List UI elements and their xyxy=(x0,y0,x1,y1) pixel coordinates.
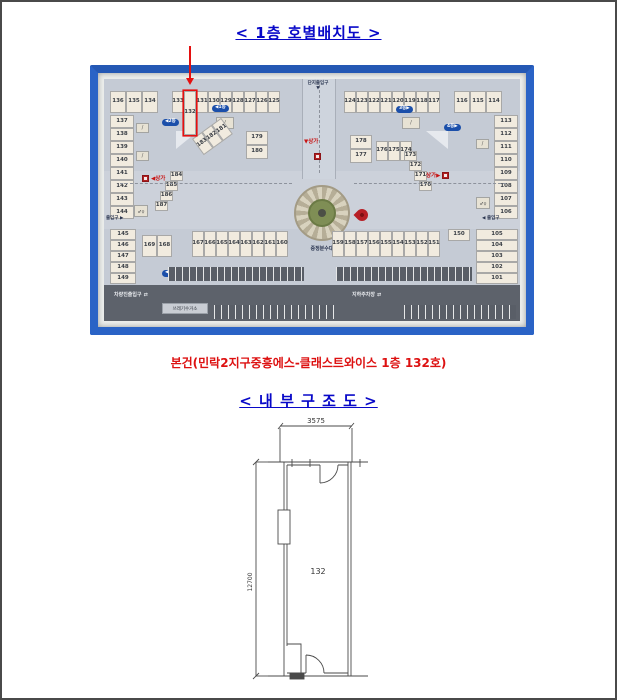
structure-diagram: 3575 12700 132 xyxy=(230,410,400,700)
parking-strip xyxy=(168,267,304,281)
unit-cell: 164 xyxy=(228,231,240,257)
unit-cell: 110 xyxy=(494,154,518,167)
unit-column: 178177 xyxy=(350,135,372,163)
floor-layout-photo: 단지출입구 ▼ 136135134 1331321311301291281271… xyxy=(90,65,534,335)
document-page: < 1층 호별배치도 > 단지출입구 ▼ 136135134 133132131… xyxy=(0,0,617,700)
restroom-icon: ♂♀ xyxy=(134,205,148,217)
plaza-dash-line xyxy=(120,183,292,184)
unit-cell: 154 xyxy=(392,231,404,257)
unit-number: 132 xyxy=(310,567,325,576)
entrance-corridor xyxy=(302,79,336,179)
unit-cell: 162 xyxy=(252,231,264,257)
unit-row: 159158157156155154153152151 xyxy=(332,231,440,257)
unit-cell: 125 xyxy=(268,91,280,113)
sangga-right-label: 상가▶ xyxy=(426,171,449,179)
unit-cell: 169 xyxy=(142,235,157,257)
building-pill: ◀2동 xyxy=(162,119,179,126)
unit-cell: 131 xyxy=(196,91,208,113)
unit-cell: 187 xyxy=(155,201,168,211)
unit-cell: 148 xyxy=(110,262,136,273)
down-arrow-icon: ▼ xyxy=(316,86,319,91)
sangga-center-label: ▼상가 xyxy=(304,137,318,145)
stairs-icon: / xyxy=(136,123,149,133)
unit-column: 179180 xyxy=(246,131,268,159)
stairs-icon: / xyxy=(476,139,489,149)
unit-cell: 184 xyxy=(170,171,183,181)
unit-cell: 161 xyxy=(264,231,276,257)
unit-cell: 123 xyxy=(356,91,368,113)
car-icon: ⇄ xyxy=(377,292,381,298)
site-map: 단지출입구 ▼ 136135134 1331321311301291281271… xyxy=(104,79,520,321)
parking-strip xyxy=(336,267,472,281)
unit-cell: 152 xyxy=(416,231,428,257)
unit-cell: 105 xyxy=(476,229,518,240)
unit-cell: 132 xyxy=(184,91,196,135)
gate-right-label: ◀ 출입구 xyxy=(482,215,499,221)
building-pill: ◀1동 xyxy=(212,105,229,112)
unit-row: 136135134 xyxy=(110,91,158,113)
unit-cell: 179 xyxy=(246,131,268,145)
unit-cell: 138 xyxy=(110,128,134,141)
shop-marker-icon xyxy=(314,153,321,160)
unit-cell: 107 xyxy=(494,193,518,206)
height-dimension: 12700 xyxy=(247,572,254,591)
subject-line: 본건(민락2지구중흥에스-클래스트와이스 1층 132호) xyxy=(2,354,615,371)
structure-title: < 내 부 구 조 도 > xyxy=(2,390,615,411)
unit-cell: 102 xyxy=(476,262,518,273)
building-pill: 4동▶ xyxy=(444,124,461,131)
unit-cell: 134 xyxy=(142,91,158,113)
unit-cell: 127 xyxy=(244,91,256,113)
unit-cell: 116 xyxy=(454,91,470,113)
unit-cell: 137 xyxy=(110,115,134,128)
unit-cell: 121 xyxy=(380,91,392,113)
unit-cell: 168 xyxy=(157,235,172,257)
unit-cell: 135 xyxy=(126,91,142,113)
unit-cell: 114 xyxy=(486,91,502,113)
unit-cell: 141 xyxy=(110,167,134,180)
unit-cell: 158 xyxy=(344,231,356,257)
unit-cell: 180 xyxy=(246,145,268,159)
unit-cell: 133 xyxy=(172,91,184,113)
gate-left-label: 출입구 ▶ xyxy=(106,215,123,221)
unit-cell: 113 xyxy=(494,115,518,128)
unit-cell: 163 xyxy=(240,231,252,257)
unit-cell: 167 xyxy=(192,231,204,257)
unit-cell: 159 xyxy=(332,231,344,257)
stairs-icon: / xyxy=(136,151,149,161)
building-pill: 3동▶ xyxy=(396,106,413,113)
unit-cell: 108 xyxy=(494,180,518,193)
unit-row: 169168 xyxy=(142,235,172,257)
unit-cell: 142 xyxy=(110,180,134,193)
unit-cell: 149 xyxy=(110,273,136,284)
unit-cell: 186 xyxy=(160,191,173,201)
sangga-left-label: ◀상가 xyxy=(142,174,165,182)
trash-station-label: 쓰레기수거소 xyxy=(162,303,208,314)
unit-column: 137138139140141142143144 xyxy=(110,115,134,219)
unit-cell: 136 xyxy=(110,91,126,113)
unit-stair-column: 184185186187 xyxy=(170,171,183,211)
unit-cell: 150 xyxy=(448,229,470,241)
highlight-arrow-icon xyxy=(189,46,191,78)
unit-cell: 143 xyxy=(110,193,134,206)
unit-cell: 176 xyxy=(376,141,388,161)
unit-cell: 126 xyxy=(256,91,268,113)
unit-cell: 101 xyxy=(476,273,518,284)
unit-row: 116115114 xyxy=(454,91,502,113)
unit-cell: 175 xyxy=(388,141,400,161)
landscape-triangle xyxy=(426,131,448,149)
unit-cell: 177 xyxy=(350,149,372,163)
unit-cell: 156 xyxy=(368,231,380,257)
unit-cell: 165 xyxy=(216,231,228,257)
restroom-icon: ♂♀ xyxy=(476,197,490,209)
unit-cell: 147 xyxy=(110,251,136,262)
shop-marker-icon xyxy=(142,175,149,182)
unit-cell: 139 xyxy=(110,141,134,154)
complex-entrance-label: 단지출입구 ▼ xyxy=(290,81,346,92)
unit-cell: 117 xyxy=(428,91,440,113)
floorplan-svg: 3575 12700 132 xyxy=(230,410,400,696)
parking-strip xyxy=(404,305,516,319)
parking-strip xyxy=(214,305,334,319)
floor-layout-title: < 1층 호별배치도 > xyxy=(2,22,615,43)
unit-cell: 112 xyxy=(494,128,518,141)
plaza-dash-line xyxy=(354,183,506,184)
unit-cell: 145 xyxy=(110,229,136,240)
parking-basement-label: 지하주차장⇄ xyxy=(352,291,381,298)
unit-cell: 128 xyxy=(232,91,244,113)
unit-row: 124123122121120119118117 xyxy=(344,91,440,113)
unit-cell: 160 xyxy=(276,231,288,257)
unit-cell: 104 xyxy=(476,240,518,251)
unit-column: 145146147148149 xyxy=(110,229,136,284)
unit-cell: 173 xyxy=(404,151,417,161)
unit-cell: 153 xyxy=(404,231,416,257)
unit-cell: 157 xyxy=(356,231,368,257)
unit-column: 113112111110109108107106 xyxy=(494,115,518,219)
unit-column: 105104103102101 xyxy=(476,229,518,284)
unit-cell: 146 xyxy=(110,240,136,251)
car-icon: ⇄ xyxy=(144,292,148,298)
unit-row: 167166165164163162161160 xyxy=(192,231,288,257)
unit-cell: 109 xyxy=(494,167,518,180)
unit-cell: 140 xyxy=(110,154,134,167)
unit-cell: 118 xyxy=(416,91,428,113)
width-dimension: 3575 xyxy=(307,417,325,425)
unit-cell: 155 xyxy=(380,231,392,257)
parking-gate-label: 차량진출입구⇄ xyxy=(114,291,148,298)
unit-cell: 172 xyxy=(409,161,422,171)
unit-cell: 111 xyxy=(494,141,518,154)
shop-marker-icon xyxy=(442,172,449,179)
unit-cell: 103 xyxy=(476,251,518,262)
unit-cell: 115 xyxy=(470,91,486,113)
unit-cell: 178 xyxy=(350,135,372,149)
unit-cell: 122 xyxy=(368,91,380,113)
unit-cell: 124 xyxy=(344,91,356,113)
stairs-icon: / xyxy=(402,117,420,129)
unit-cell: 151 xyxy=(428,231,440,257)
unit-cell: 166 xyxy=(204,231,216,257)
